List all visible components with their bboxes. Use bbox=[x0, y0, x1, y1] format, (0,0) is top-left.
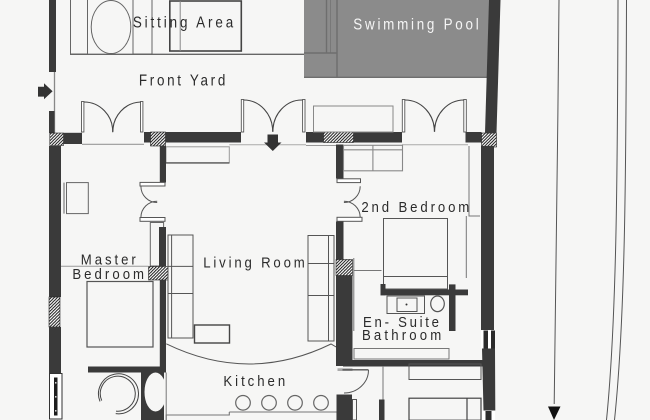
svg-text:Living Room: Living Room bbox=[203, 254, 304, 271]
svg-text:Swimming Pool: Swimming Pool bbox=[353, 16, 478, 33]
svg-text:2nd Bedroom: 2nd Bedroom bbox=[361, 198, 469, 215]
